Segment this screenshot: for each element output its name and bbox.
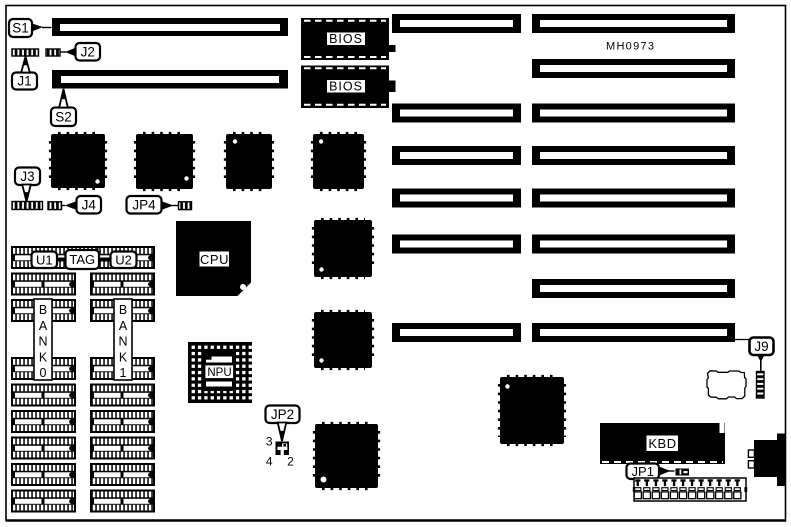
svg-text:NPU: NPU <box>207 367 231 379</box>
svg-text:3: 3 <box>266 435 273 449</box>
svg-text:J1: J1 <box>17 74 31 89</box>
svg-text:B: B <box>119 303 127 317</box>
svg-text:KBD: KBD <box>648 436 676 451</box>
svg-text:TAG: TAG <box>69 252 95 267</box>
svg-text:J9: J9 <box>754 339 768 354</box>
svg-text:A: A <box>119 319 128 333</box>
svg-text:K: K <box>119 351 128 365</box>
svg-text:S2: S2 <box>55 109 72 124</box>
svg-text:U1: U1 <box>36 252 53 267</box>
svg-text:N: N <box>118 335 127 349</box>
svg-text:1: 1 <box>120 366 127 380</box>
svg-text:N: N <box>38 335 47 349</box>
svg-text:J3: J3 <box>20 169 34 184</box>
svg-text:U2: U2 <box>115 252 132 267</box>
svg-text:BIOS: BIOS <box>329 32 363 46</box>
svg-text:JP2: JP2 <box>271 407 294 422</box>
svg-text:JP4: JP4 <box>132 197 156 212</box>
svg-text:0: 0 <box>40 366 47 380</box>
svg-text:J4: J4 <box>82 197 97 212</box>
svg-text:CPU: CPU <box>200 252 229 267</box>
svg-text:B: B <box>39 303 47 317</box>
svg-text:J2: J2 <box>81 44 95 59</box>
svg-text:2: 2 <box>287 455 294 469</box>
svg-text:A: A <box>39 319 48 333</box>
svg-text:BIOS: BIOS <box>329 79 363 93</box>
svg-text:4: 4 <box>266 455 273 469</box>
svg-text:S1: S1 <box>12 21 29 36</box>
svg-text:K: K <box>39 351 48 365</box>
svg-text:JP1: JP1 <box>632 464 654 479</box>
